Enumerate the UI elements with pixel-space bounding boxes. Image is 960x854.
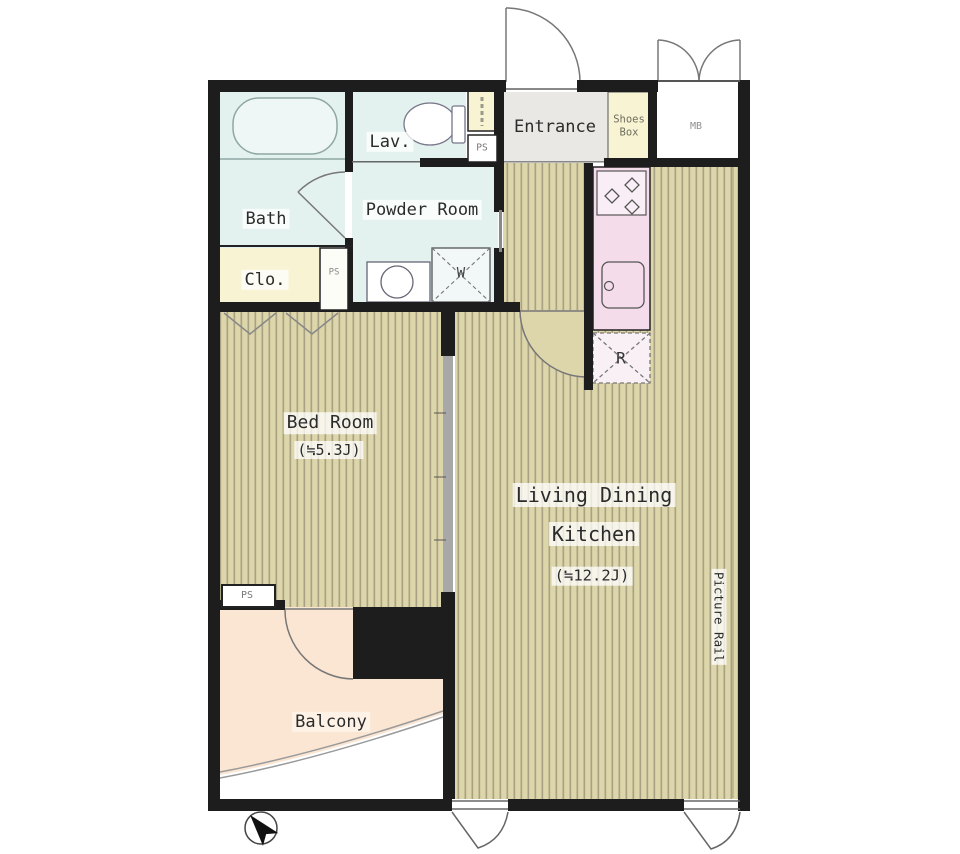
hall-storage-strip [468, 90, 497, 131]
lav-label: Lav. [367, 132, 414, 152]
structural-pillar [353, 607, 443, 679]
entrance-label: Entrance [514, 117, 596, 137]
pipe-space-label-3: PS [241, 590, 253, 602]
ldk-area-label: (≒12.2J) [552, 567, 633, 586]
balcony-label: Balcony [292, 712, 370, 732]
floor-plan: Bath Lav. Powder Room Clo. Entrance Shoe… [0, 0, 960, 854]
powder-room-label: Powder Room [363, 200, 482, 220]
stove-icon [597, 171, 646, 215]
kitchen-counter [593, 167, 650, 330]
pipe-space-label-1: PS [476, 142, 487, 153]
bed-room-area-label: (≒5.3J) [294, 441, 363, 459]
closet-label: Clo. [242, 270, 289, 290]
ldk-label-line2: Kitchen [549, 522, 639, 546]
bath-label: Bath [243, 209, 290, 229]
picture-rail-label: Picture Rail [712, 569, 727, 665]
floor-plan-drawing [0, 0, 960, 854]
washing-machine-label: W [457, 266, 465, 283]
meter-box-label: MB [690, 121, 702, 133]
north-arrow-icon [242, 809, 278, 846]
bathtub-icon [233, 98, 337, 154]
bed-room-label: Bed Room [284, 412, 377, 434]
washbasin-icon [367, 262, 430, 302]
refrigerator-label: R [616, 348, 626, 367]
pipe-space-label-2: PS [329, 268, 340, 279]
ldk-label-line1: Living Dining [513, 483, 676, 507]
shoes-box-label: Shoes Box [606, 113, 652, 138]
